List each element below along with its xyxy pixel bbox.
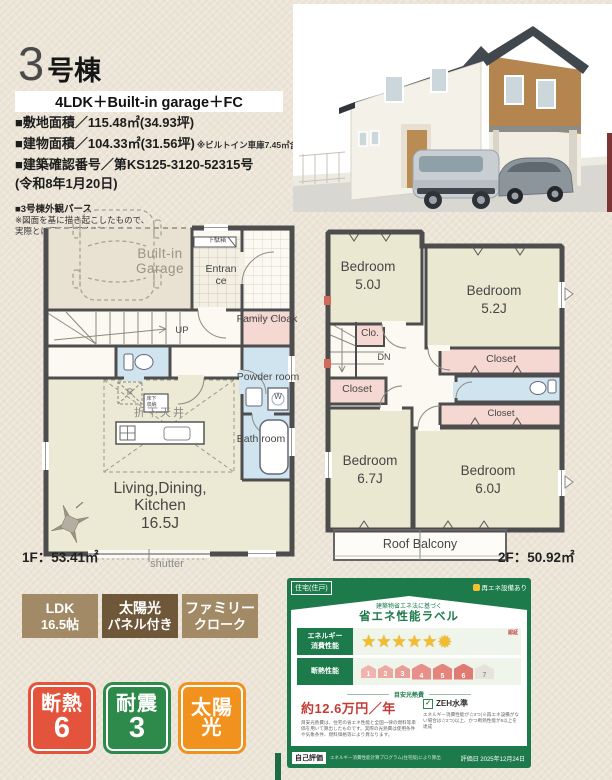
zeh-note: エネルギー消費性能が☆3つ(※再エネ設備がない場合は☆2つ)以上、かつ断熱性能が… (423, 712, 519, 730)
self-evaluation-badge: 自己評価 (292, 752, 326, 764)
room-label-closet2: Closet (327, 384, 387, 396)
renewable-badge-text: 再エネ設備あり (482, 582, 528, 592)
star-icon: ★ (361, 633, 376, 650)
bedroom1-size: 5.0J (355, 277, 381, 292)
zeh-label: ZEH水準 (436, 698, 468, 709)
perspective-note-title: ■3号棟外観パース (15, 201, 185, 215)
insulation-label: 断熱性能 (297, 658, 353, 685)
flyer-page: { "header": { "unit_no": "3", "unit_suff… (0, 0, 612, 780)
label-shoe-cabinet: 下駄箱 (197, 238, 237, 245)
divider-line (347, 694, 389, 695)
room-label-bedroom4: Bedroom 6.0J (450, 462, 526, 498)
wall-marker-red-2 (324, 359, 331, 368)
insulation-grade-value: 6 (54, 714, 70, 743)
exterior-render-svg (293, 4, 612, 212)
label-shutter: shutter (127, 558, 207, 570)
exterior-perspective-image (293, 4, 612, 212)
energy-consumption-row: エネルギー 消費性能 認証 ★ ★ ★ ★ ★ ✹ (297, 628, 521, 655)
insulation-grade-label: 断熱 (41, 694, 83, 714)
insulation-level-2: 2 (378, 665, 393, 678)
green-corner-strip (275, 753, 281, 780)
unit-suffix: 号棟 (47, 56, 101, 86)
room-label-entrance: Entrance (203, 264, 239, 288)
spec-confirmation-number: ■建築確認番号／第KS125-3120-52315号 (15, 154, 305, 173)
divider-line (429, 694, 471, 695)
spec-building-area-text: ■建物面積／104.33㎡(31.56坪) (15, 136, 195, 151)
room-label-ldk: Living,Dining, Kitchen 16.5J (90, 480, 230, 532)
badge-insulation-grade: 断熱 6 (28, 682, 96, 754)
insulation-level-7: 7 (475, 664, 494, 679)
spec-confirmation-date: (令和8年1月20日) (15, 173, 305, 192)
energy-label-card: 建築物省エネ法に基づく 省エネ性能ラベル エネルギー 消費性能 認証 ★ ★ ★… (291, 596, 527, 746)
spec-site-area: ■敷地面積／115.48㎡(34.93坪) (15, 112, 305, 131)
sun-icon (473, 584, 480, 591)
page-edge-red-strip (607, 133, 612, 212)
energy-performance-label: 住宅(住戸) 再エネ設備あり 建築物省エネ法に基づく 省エネ性能ラベル エネルギ… (287, 578, 531, 768)
room-label-bedroom2: Bedroom 5.2J (456, 282, 532, 318)
energy-label-footer: 自己評価 エネルギー消費性能計算プログラム(住宅版)により算出 評価日 2025… (287, 748, 531, 768)
plan-type-banner: 4LDK＋Built-in garage＋FC (15, 91, 283, 112)
bathtub-icon (260, 420, 288, 474)
room-label-family-cloak: Family Cloak (232, 314, 302, 326)
badge-ldk-line2: 16.5帖 (41, 617, 79, 633)
badge-solar-line2: パネル付き (107, 617, 172, 633)
bedroom2-size: 5.2J (481, 301, 507, 316)
insulation-level-4: 4 (412, 664, 431, 680)
seismic-grade-value: 3 (129, 714, 145, 743)
room-label-closet3: Closet (461, 409, 541, 420)
energy-row-label1: エネルギー (308, 632, 343, 641)
badge-ldk: LDK 16.5帖 (22, 594, 98, 638)
insulation-level-1: 1 (361, 665, 376, 678)
toilet-icon-1f (124, 354, 153, 370)
evaluation-date: 評価日 2025年12月24日 (461, 754, 525, 763)
label-fridge: R (122, 387, 138, 397)
floor-area-1f: 1F：53.41㎡ (22, 546, 99, 566)
insulation-row: 断熱性能 1 2 3 4 5 6 7 (297, 658, 521, 685)
floor-area-2f: 2F：50.92㎡ (498, 546, 575, 566)
badge-family-line2: クローク (194, 617, 246, 633)
star-icon: ★ (376, 633, 391, 650)
room-label-bedroom3: Bedroom 6.7J (332, 452, 408, 488)
cost-and-zeh-row: 約12.6万円／年 目安光熱費は、住宅の省エネ性能と全国一律の燃料等単価を用いて… (301, 698, 519, 738)
unit-number: 3 (18, 37, 44, 90)
badge-seismic-grade: 耐震 3 (103, 682, 171, 754)
label-type-badge: 住宅(住戸) (291, 581, 332, 595)
label-washer: W (268, 393, 288, 402)
kitchen-counter (116, 422, 204, 444)
renewable-equipment-badge: 再エネ設備あり (473, 582, 528, 592)
insulation-level-5: 5 (433, 664, 452, 680)
label-lowered-ceiling: 折下天井 (118, 407, 202, 419)
certified-mark: 認証 (508, 629, 518, 636)
room-label-bath-room: Bath room (234, 434, 288, 446)
cost-disclaimer: 目安光熱費は、住宅の省エネ性能と全国一律の燃料等単価を用いて算出したものです。実… (301, 720, 419, 738)
performance-badges: 断熱 6 耐震 3 太陽 光 (28, 682, 246, 754)
annual-cost-column: 約12.6万円／年 目安光熱費は、住宅の省エネ性能と全国一律の燃料等単価を用いて… (301, 698, 419, 738)
compass-icon (50, 502, 90, 546)
room-label-garage: Built-in Garage (125, 246, 195, 276)
zeh-column: ✓ ZEH水準 エネルギー消費性能が☆3つ(※再エネ設備がない場合は☆2つ)以上… (419, 698, 519, 738)
bedroom4-name: Bedroom (461, 463, 516, 478)
star-rating: 認証 ★ ★ ★ ★ ★ ✹ (353, 628, 521, 655)
bedroom4-size: 6.0J (475, 481, 501, 496)
floor-plan-2f: Bedroom 5.0J Bedroom 5.2J Clo. DN Closet… (322, 226, 570, 568)
badge-solar-panel: 太陽光 パネル付き (102, 594, 178, 638)
room-label-bedroom1: Bedroom 5.0J (330, 258, 406, 294)
label-stairs-dn: DN (372, 352, 396, 362)
energy-row-label2: 消費性能 (311, 642, 339, 651)
bedroom3-size: 6.7J (357, 471, 383, 486)
zeh-standard: ✓ ZEH水準 (423, 698, 519, 709)
insulation-level-3: 3 (395, 665, 410, 678)
room-label-powder-room: Powder room (234, 372, 302, 384)
burst-star-icon: ✹ (437, 633, 452, 651)
ldk-size: 16.5J (141, 515, 179, 532)
spec-building-area: ■建物面積／104.33㎡(31.56坪)※ビルトイン車庫7.45㎡含む (15, 133, 305, 152)
wall-marker-red-1 (324, 296, 331, 305)
self-evaluation-note: エネルギー消費性能計算プログラム(住宅版)により算出 (330, 755, 461, 761)
plan-type-text: 4LDK＋Built-in garage＋FC (55, 91, 243, 112)
badge-solar: 太陽 光 (178, 682, 246, 754)
insulation-label-text: 断熱性能 (311, 667, 339, 676)
checkbox-checked-icon: ✓ (423, 699, 433, 709)
spec-garage-note: ※ビルトイン車庫7.45㎡含む (197, 140, 307, 150)
badge-family-line1: ファミリー (185, 600, 255, 617)
seismic-grade-label: 耐震 (116, 694, 158, 714)
star-icon: ★ (392, 633, 407, 650)
unit-title: 3号棟 (18, 40, 101, 88)
bedroom3-name: Bedroom (343, 453, 398, 468)
label-stairs-up: UP (168, 326, 196, 337)
bedroom2-name: Bedroom (467, 283, 522, 298)
energy-label-title: 省エネ性能ラベル (291, 608, 527, 624)
insulation-scale: 1 2 3 4 5 6 7 (353, 658, 521, 685)
ldk-name: Living,Dining, Kitchen (113, 480, 206, 514)
feature-badges: LDK 16.5帖 太陽光 パネル付き ファミリー クローク (22, 594, 258, 638)
room-label-closet1: Closet (461, 354, 541, 366)
star-icon: ★ (407, 633, 422, 650)
room-label-clo: Clo. (352, 328, 388, 339)
solar-badge-line2: 光 (202, 718, 223, 738)
badge-solar-line1: 太陽光 (119, 600, 161, 617)
energy-consumption-label: エネルギー 消費性能 (297, 628, 353, 655)
insulation-level-6: 6 (454, 664, 473, 680)
washbasin-icon (246, 388, 262, 406)
bedroom1-name: Bedroom (341, 259, 396, 274)
badge-family-cloak: ファミリー クローク (182, 594, 258, 638)
annual-cost-value: 約12.6万円／年 (301, 698, 419, 717)
room-label-roof-balcony: Roof Balcony (360, 537, 480, 551)
solar-badge-line1: 太陽 (191, 698, 233, 718)
badge-ldk-line1: LDK (46, 600, 75, 617)
star-icon: ★ (422, 633, 437, 650)
